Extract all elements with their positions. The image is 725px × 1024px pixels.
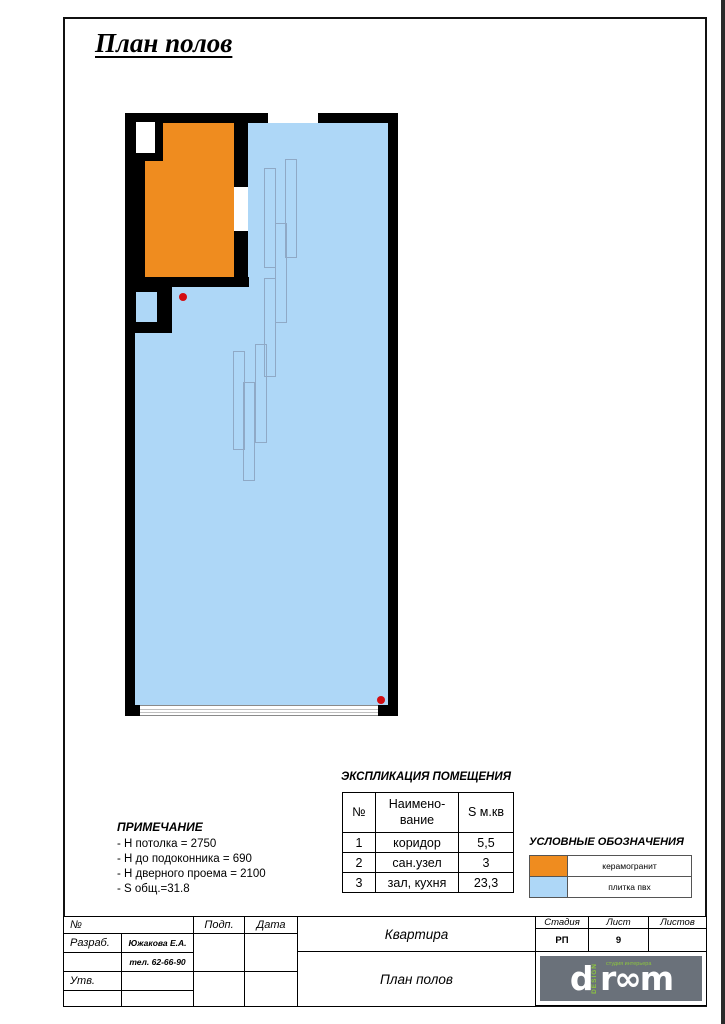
date-cell — [244, 933, 298, 972]
scan-edge-line — [721, 0, 725, 1024]
notes-block: ПРИМЕЧАНИЕ - Н потолка = 2750 - Н до под… — [117, 820, 266, 897]
sheet-value-cell: 9 — [588, 928, 649, 952]
logo-cell: d DESIGN r∞m студия интерьера — [535, 951, 707, 1006]
room-num: 2 — [343, 853, 376, 873]
signature-cell — [193, 933, 245, 972]
sheet-title-cell: План полов — [297, 951, 536, 1007]
vent-shaft-notch — [136, 122, 155, 153]
legend-label: керамогранит — [568, 856, 691, 876]
empty-cell — [121, 971, 194, 991]
sanuzel-door-opening — [234, 187, 248, 231]
date-cell — [244, 971, 298, 1007]
room-name: сан.узел — [376, 853, 459, 873]
room-name: зал, кухня — [376, 873, 459, 893]
num-label-cell: № — [63, 916, 194, 934]
marker-dot — [377, 696, 385, 704]
table-row: 3 зал, кухня 23,3 — [343, 873, 514, 893]
note-line: - Н потолка = 2750 — [117, 837, 266, 852]
notes-title: ПРИМЕЧАНИЕ — [117, 820, 266, 835]
date-label-cell: Дата — [244, 916, 298, 934]
room-area: 3 — [459, 853, 514, 873]
wall-niche-alcove — [136, 292, 157, 322]
explication-header-area: S м.кв — [459, 793, 514, 833]
marker-dot — [179, 293, 187, 301]
legend-label: плитка пвх — [568, 877, 691, 897]
note-line: - S общ.=31.8 — [117, 882, 266, 897]
window-bottom — [140, 705, 378, 716]
project-name-cell: Квартира — [297, 916, 536, 952]
wall-sanuzel-right-upper — [234, 123, 248, 187]
wall-top — [125, 113, 398, 123]
developer-phone-cell: тел. 62-66-90 — [121, 952, 194, 972]
developer-name-cell: Южакова Е.А. — [121, 933, 194, 953]
room-name: коридор — [376, 833, 459, 853]
explication-header-num: № — [343, 793, 376, 833]
stage-value-cell: РП — [535, 928, 589, 952]
sign-label-cell: Подп. — [193, 916, 245, 934]
table-row: 2 сан.узел 3 — [343, 853, 514, 873]
table-row: 1 коридор 5,5 — [343, 833, 514, 853]
room-num: 3 — [343, 873, 376, 893]
developed-label-cell: Разраб. — [63, 933, 122, 953]
room-area: 5,5 — [459, 833, 514, 853]
page-title: План полов — [95, 28, 232, 59]
floor-plank — [243, 382, 255, 481]
logo-tagline: студия интерьера — [606, 961, 651, 967]
explication-table: № Наимено- вание S м.кв 1 коридор 5,5 2 … — [342, 792, 514, 893]
floor-plank — [255, 344, 267, 443]
legend-box: керамогранит плитка пвх — [529, 855, 692, 898]
sheets-value-cell — [648, 928, 707, 952]
wall-right — [388, 113, 398, 716]
droom-logo: d DESIGN r∞m студия интерьера — [540, 956, 702, 1001]
legend-item: плитка пвх — [530, 876, 691, 897]
wall-bottom-right-corner — [378, 705, 398, 716]
approved-label-cell: Утв. — [63, 971, 122, 991]
room-area: 23,3 — [459, 873, 514, 893]
logo-design-vertical-text: DESIGN — [592, 963, 599, 994]
note-line: - Н до подоконника = 690 — [117, 852, 266, 867]
wall-bottom-left-corner — [125, 705, 140, 716]
signature-cell — [193, 971, 245, 1007]
explication-header-name: Наимено- вание — [376, 793, 459, 833]
wall-sanuzel-right-lower — [234, 231, 248, 277]
empty-cell — [63, 990, 122, 1007]
top-door-opening — [268, 113, 318, 123]
drawing-sheet: План полов — [0, 0, 725, 1024]
floor-plank — [275, 223, 287, 323]
explication-title: ЭКСПЛИКАЦИЯ ПОМЕЩЕНИЯ — [341, 771, 511, 783]
empty-cell — [121, 990, 194, 1007]
ceramic-swatch — [530, 856, 568, 876]
note-line: - Н дверного проема = 2100 — [117, 867, 266, 882]
pvc-swatch — [530, 877, 568, 897]
logo-letter-d: d — [570, 962, 592, 995]
wall-left-thick — [125, 161, 145, 277]
legend-item: керамогранит — [530, 856, 691, 876]
legend-title: УСЛОВНЫЕ ОБОЗНАЧЕНИЯ — [529, 836, 684, 848]
room-num: 1 — [343, 833, 376, 853]
empty-cell — [63, 952, 122, 972]
